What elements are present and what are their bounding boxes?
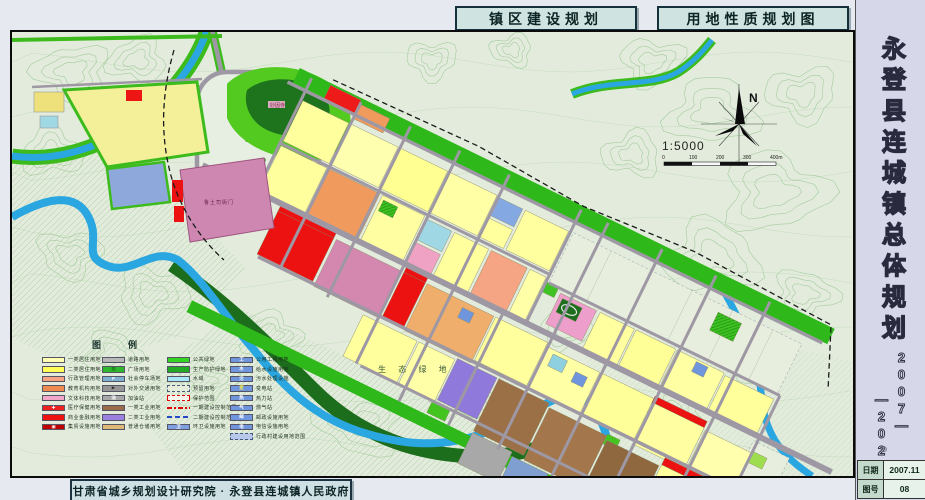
legend-label: 加油站 (128, 395, 145, 402)
legend-label: 文体科技用地 (68, 395, 101, 402)
legend-item: 二期建设控制范围 (167, 413, 237, 423)
sheet-number-value: 08 (884, 480, 925, 498)
scale-tick: 400m (770, 155, 783, 161)
legend-title: 图 例 (92, 338, 146, 351)
legend-item: 行政管理用地 (42, 374, 101, 384)
legend-swatch: ✚ (42, 405, 65, 412)
legend-column-2: 道路用地▥广场用地P社会停车场地▶对外交通用地油加油站一类工业用地二类工业用地普… (102, 355, 161, 432)
legend-swatch: 工 (230, 357, 253, 364)
legend-swatch (102, 405, 125, 412)
legend-swatch (102, 424, 125, 431)
date-row: 日期 2007.11 (858, 461, 925, 479)
sheet-info-table: 日期 2007.11 图号 08 (857, 460, 925, 499)
legend-item: 二类居住用地 (42, 365, 101, 375)
legend-item: ▣集贸设施用地 (42, 422, 101, 432)
legend-label: 教育机构用地 (68, 385, 101, 392)
legend-label: 污水处理设施 (256, 375, 289, 382)
credit-box: 甘肃省城乡规划设计研究院 · 永登县连城镇人民政府 (70, 479, 352, 500)
scale-tick: 200 (716, 155, 725, 161)
legend-label: 燃气站 (256, 404, 273, 411)
legend-swatch: 油 (102, 395, 125, 402)
legend-swatch: P (102, 376, 125, 383)
legend-label: 水域 (193, 375, 204, 382)
legend-label: 二类工业用地 (128, 414, 161, 421)
legend-swatch: ▥ (102, 366, 125, 373)
legend-label: 医疗保健用地 (68, 404, 101, 411)
legend-label: 行政管理用地 (68, 375, 101, 382)
scale-tick: 100 (689, 155, 698, 161)
legend-label: 保护范围 (193, 395, 215, 402)
legend-label: 商业金融用地 (68, 414, 101, 421)
legend-swatch: 卫 (167, 424, 190, 431)
legend-item: 电电信设施用地 (230, 422, 306, 432)
legend-swatch (42, 376, 65, 383)
legend-item: 一类工业用地 (102, 403, 161, 413)
legend-label: 普通仓储用地 (128, 423, 161, 430)
legend-swatch: ▣ (42, 424, 65, 431)
legend-item: 教育机构用地 (42, 384, 101, 394)
legend-swatch (42, 357, 65, 364)
legend-swatch (167, 416, 190, 418)
legend-item: 水给水设施用地 (230, 365, 306, 375)
legend-swatch (167, 366, 190, 373)
legend-item: 气燃气站 (230, 403, 306, 413)
legend-label: 道路用地 (128, 356, 150, 363)
legend-swatch: 邮 (230, 414, 253, 421)
legend-swatch (167, 385, 190, 392)
legend-swatch (42, 414, 65, 421)
legend-item: ▶对外交通用地 (102, 384, 161, 394)
legend-swatch: 电 (230, 424, 253, 431)
scale-ratio: 1:5000 (662, 139, 705, 153)
legend-column-1: 一类居住用地二类居住用地行政管理用地教育机构用地文体科技用地✚医疗保健用地商业金… (42, 355, 101, 432)
date-label: 日期 (858, 461, 884, 479)
legend-label: 预留用地 (193, 385, 215, 392)
date-value: 2007.11 (884, 461, 925, 479)
planning-sheet: 镇区建设规划 用地性质规划图 (0, 0, 925, 500)
legend-item: 二类工业用地 (102, 413, 161, 423)
legend-item: 工公用工程用地 (230, 355, 306, 365)
plan-period-start: 2007— (894, 350, 909, 435)
legend-item: 保护范围 (167, 393, 237, 403)
legend-item: 邮邮政设施用地 (230, 413, 306, 423)
legend-swatch (167, 376, 190, 383)
legend-item: 油加油站 (102, 393, 161, 403)
legend-swatch: ▶ (102, 385, 125, 392)
legend-label: 二类居住用地 (68, 366, 101, 373)
legend-item: 商业金融用地 (42, 413, 101, 423)
legend-swatch (42, 366, 65, 373)
legend-swatch (230, 433, 253, 440)
legend-label: 社会停车场地 (128, 375, 161, 382)
legend-item: 道路用地 (102, 355, 161, 365)
eco-green-label: 生 态 绿 地 (378, 364, 452, 374)
legend-item: 污污水处理设施 (230, 374, 306, 384)
legend-label: 对外交通用地 (128, 385, 161, 392)
legend-label: 变电站 (256, 385, 273, 392)
scale-tick: 0 (662, 155, 665, 161)
legend-item: 卫环卫设施用地 (167, 422, 237, 432)
legend-swatch (102, 357, 125, 364)
legend-swatch (167, 357, 190, 364)
legend-item: 一期建设控制范围 (167, 403, 237, 413)
legend-label: 热力站 (256, 395, 273, 402)
legend-item: 水域 (167, 374, 237, 384)
scale-tick: 300 (743, 155, 752, 161)
legend-swatch: 变 (230, 385, 253, 392)
legend-item: 一类居住用地 (42, 355, 101, 365)
temple-label: 妙因寺 (270, 102, 285, 109)
legend-label: 行政村建设用地范围 (256, 433, 306, 440)
legend-item: 文体科技用地 (42, 393, 101, 403)
legend-column-4: 工公用工程用地水给水设施用地污污水处理设施变变电站热热力站气燃气站邮邮政设施用地… (230, 355, 306, 441)
sheet-number-label: 图号 (858, 480, 884, 498)
legend-label: 集贸设施用地 (68, 423, 101, 430)
legend: 图 例 一类居住用地二类居住用地行政管理用地教育机构用地文体科技用地✚医疗保健用… (34, 336, 339, 476)
legend-item: 热热力站 (230, 393, 306, 403)
legend-label: 一类居住用地 (68, 356, 101, 363)
legend-label: 生产防护绿地 (193, 366, 226, 373)
heritage-label: 鲁土司衙门 (204, 199, 234, 206)
legend-label: 电信设施用地 (256, 423, 289, 430)
legend-item: ✚医疗保健用地 (42, 403, 101, 413)
legend-item: 行政村建设用地范围 (230, 432, 306, 442)
legend-item: 生产防护绿地 (167, 365, 237, 375)
legend-label: 给水设施用地 (256, 366, 289, 373)
planning-map: 妙因寺 (10, 30, 855, 478)
legend-label: 公用工程用地 (256, 356, 289, 363)
sheet-title-right: 用地性质规划图 (657, 6, 849, 31)
legend-item: P社会停车场地 (102, 374, 161, 384)
legend-swatch (42, 385, 65, 392)
legend-item: 普通仓储用地 (102, 422, 161, 432)
legend-swatch (102, 414, 125, 421)
title-sidebar: 永登县连城镇总体规划 2007— —2020 ⊕ 日期 2007.11 图号 0… (855, 0, 925, 500)
legend-swatch (42, 395, 65, 402)
legend-column-3: 公共绿地生产防护绿地水域预留用地保护范围一期建设控制范围二期建设控制范围卫环卫设… (167, 355, 237, 432)
legend-item: 预留用地 (167, 384, 237, 394)
legend-label: 广场用地 (128, 366, 150, 373)
plan-title-vertical: 永登县连城镇总体规划 (874, 36, 909, 346)
legend-swatch: 污 (230, 376, 253, 383)
legend-item: ▥广场用地 (102, 365, 161, 375)
legend-label: 一类工业用地 (128, 404, 161, 411)
legend-swatch (167, 407, 190, 409)
registration-mark: ⊕ (880, 444, 888, 455)
legend-label: 公共绿地 (193, 356, 215, 363)
legend-label: 环卫设施用地 (193, 423, 226, 430)
legend-item: 公共绿地 (167, 355, 237, 365)
legend-swatch (167, 395, 190, 402)
legend-swatch: 气 (230, 405, 253, 412)
sheet-number-row: 图号 08 (858, 479, 925, 498)
sheet-title-left: 镇区建设规划 (455, 6, 637, 31)
legend-swatch: 水 (230, 366, 253, 373)
north-label: N (749, 91, 758, 105)
legend-label: 邮政设施用地 (256, 414, 289, 421)
legend-swatch: 热 (230, 395, 253, 402)
legend-item: 变变电站 (230, 384, 306, 394)
